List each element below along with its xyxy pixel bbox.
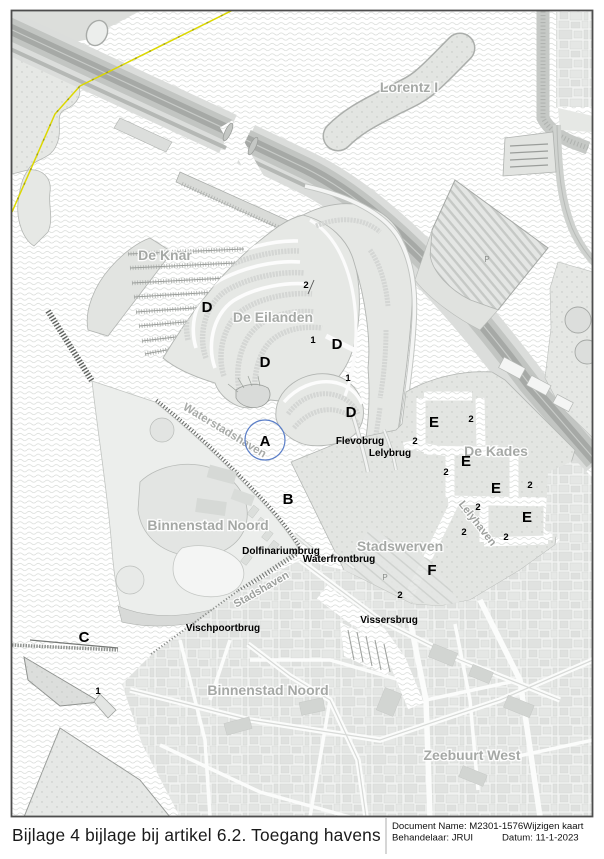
svg-text:Datum: 11-1-2023: Datum: 11-1-2023 [502, 833, 579, 844]
svg-text:2: 2 [461, 527, 466, 538]
svg-text:E: E [429, 414, 439, 431]
svg-text:2: 2 [468, 414, 473, 425]
svg-text:D: D [202, 299, 213, 316]
svg-text:Document Name: M2301-1576Wijzi: Document Name: M2301-1576Wijzigen kaart [392, 821, 584, 832]
svg-text:Waterfrontbrug: Waterfrontbrug [303, 554, 375, 565]
svg-text:2: 2 [397, 590, 402, 601]
svg-text:C: C [79, 629, 90, 646]
svg-text:Flevobrug: Flevobrug [336, 436, 384, 447]
svg-text:Vissersbrug: Vissersbrug [360, 615, 418, 626]
svg-text:F: F [427, 562, 436, 579]
svg-text:De Kades: De Kades [464, 443, 528, 459]
svg-text:De Knar: De Knar [138, 247, 192, 263]
svg-text:Bijlage 4 bijlage bij artikel: Bijlage 4 bijlage bij artikel 6.2. Toega… [12, 825, 381, 845]
svg-text:Behandelaar: JRUI: Behandelaar: JRUI [392, 833, 473, 844]
svg-text:D: D [332, 336, 343, 353]
svg-text:Zeebuurt West: Zeebuurt West [424, 747, 521, 763]
svg-text:2: 2 [303, 280, 308, 291]
svg-text:De Eilanden: De Eilanden [233, 309, 313, 325]
svg-text:Lorentz I: Lorentz I [380, 79, 438, 95]
svg-text:E: E [491, 480, 501, 497]
svg-text:Lelybrug: Lelybrug [369, 448, 411, 459]
svg-text:B: B [283, 491, 294, 508]
svg-text:P: P [382, 573, 387, 582]
svg-text:1: 1 [95, 686, 101, 697]
svg-text:2: 2 [527, 480, 532, 491]
svg-text:A: A [260, 433, 271, 450]
svg-text:E: E [522, 509, 532, 526]
svg-text:P: P [484, 255, 489, 264]
svg-text:2: 2 [412, 436, 417, 447]
svg-text:1: 1 [345, 373, 351, 384]
svg-text:Binnenstad Noord: Binnenstad Noord [207, 682, 328, 698]
svg-text:Stadswerven: Stadswerven [357, 538, 443, 554]
svg-text:1: 1 [310, 335, 316, 346]
svg-text:2: 2 [475, 502, 480, 513]
svg-text:D: D [346, 404, 357, 421]
svg-text:Vischpoortbrug: Vischpoortbrug [186, 623, 260, 634]
svg-text:D: D [260, 354, 271, 371]
svg-text:2: 2 [503, 532, 508, 543]
svg-text:E: E [461, 453, 471, 470]
svg-text:2: 2 [443, 467, 448, 478]
svg-text:Binnenstad Noord: Binnenstad Noord [147, 517, 268, 533]
